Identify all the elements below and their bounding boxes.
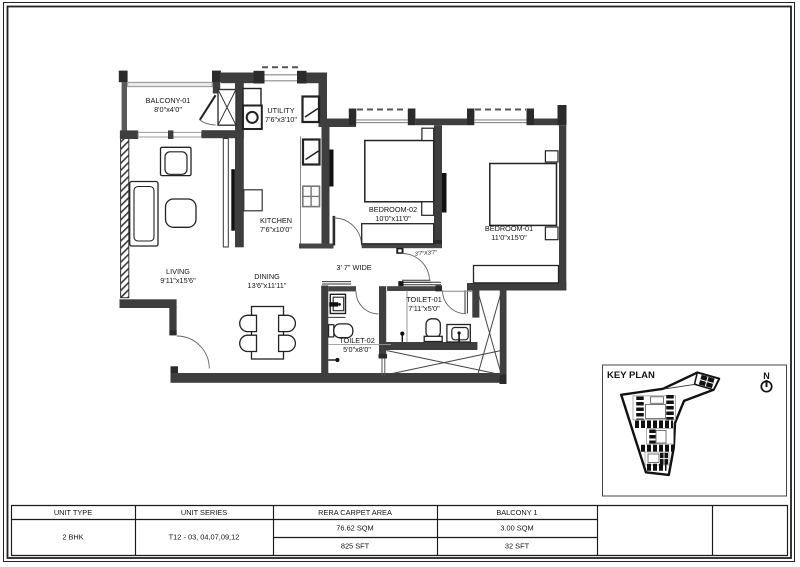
svg-text:LIVING: LIVING [166,267,190,276]
svg-text:32 SFT: 32 SFT [505,542,530,551]
svg-text:825 SFT: 825 SFT [341,542,370,551]
svg-text:10'0"x11'0": 10'0"x11'0" [375,214,411,223]
svg-text:7'11"x5'0": 7'11"x5'0" [408,304,440,313]
svg-text:2 BHK: 2 BHK [62,533,83,542]
svg-text:KITCHEN: KITCHEN [260,216,292,225]
svg-text:BALCONY-01: BALCONY-01 [146,96,191,105]
svg-text:11'0"x15'0": 11'0"x15'0" [491,233,527,242]
svg-text:TOILET-02: TOILET-02 [339,336,375,345]
svg-text:DINING: DINING [254,272,280,281]
svg-text:KEY PLAN: KEY PLAN [607,370,655,381]
svg-text:N: N [763,371,770,381]
svg-text:TOILET-01: TOILET-01 [406,295,442,304]
svg-text:76.62 SQM: 76.62 SQM [336,524,373,533]
svg-text:3.00 SQM: 3.00 SQM [500,524,533,533]
svg-text:5'0"x8'0": 5'0"x8'0" [343,345,371,354]
svg-text:7'6"x10'0": 7'6"x10'0" [260,225,292,234]
svg-text:13'6"x11'11": 13'6"x11'11" [248,281,287,290]
svg-text:8'0"x4'0": 8'0"x4'0" [154,105,182,114]
svg-text:UTILITY: UTILITY [267,106,294,115]
svg-text:9'11"x15'6": 9'11"x15'6" [160,276,196,285]
svg-text:RERA CARPET AREA: RERA CARPET AREA [318,508,392,517]
svg-text:7'6"x3'10": 7'6"x3'10" [265,115,297,124]
svg-text:3' 7" WIDE: 3' 7" WIDE [336,263,371,272]
svg-text:BEDROOM-01: BEDROOM-01 [485,224,533,233]
svg-text:BEDROOM-02: BEDROOM-02 [369,205,417,214]
svg-text:UNIT SERIES: UNIT SERIES [181,508,227,517]
svg-text:BALCONY 1: BALCONY 1 [496,508,537,517]
svg-text:T12 - 03, 04,07,09,12: T12 - 03, 04,07,09,12 [169,533,240,542]
svg-text:UNIT TYPE: UNIT TYPE [54,508,92,517]
